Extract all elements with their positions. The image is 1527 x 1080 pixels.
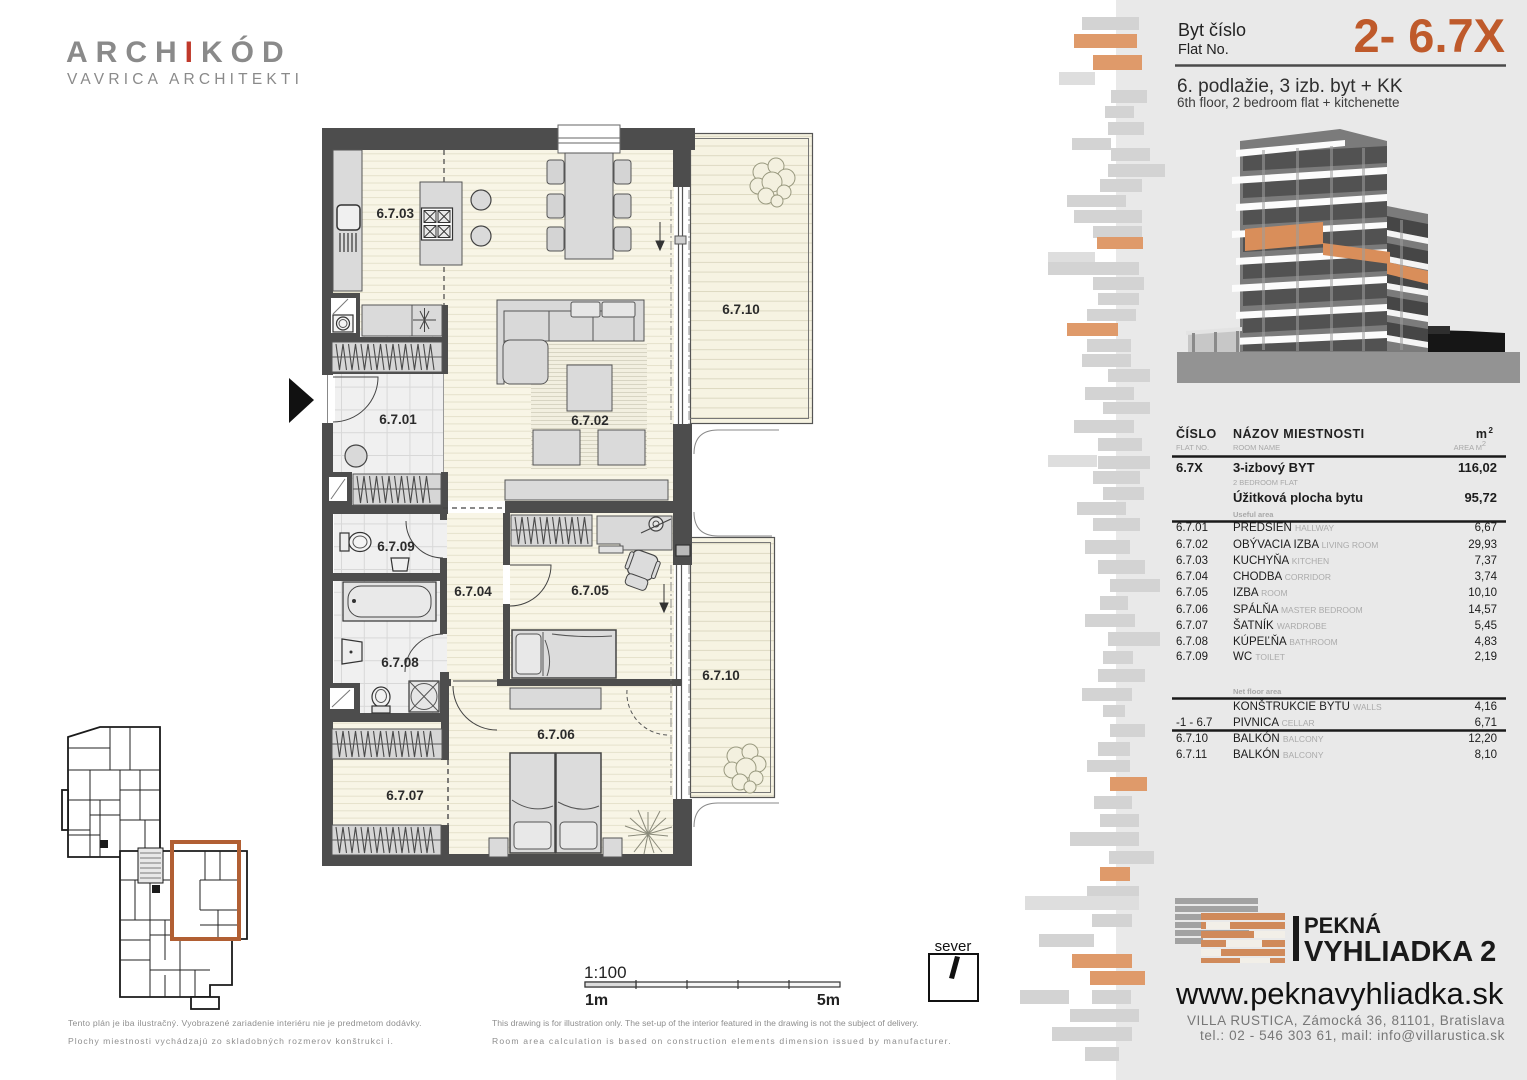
svg-text:BALKÓN BALCONY: BALKÓN BALCONY <box>1233 748 1324 761</box>
svg-text:ARCHIKÓD: ARCHIKÓD <box>66 35 292 69</box>
svg-text:KUCHYŇA KITCHEN: KUCHYŇA KITCHEN <box>1233 554 1329 567</box>
svg-text:OBÝVACIA IZBA LIVING ROOM: OBÝVACIA IZBA LIVING ROOM <box>1233 538 1378 551</box>
svg-text:4,16: 4,16 <box>1475 701 1497 713</box>
svg-text:10,10: 10,10 <box>1468 587 1497 599</box>
svg-text:Room area calculation is based: Room area calculation is based on constr… <box>492 1036 952 1046</box>
svg-text:Plochy miestnosti vychádzajú z: Plochy miestnosti vychádzajú zo skladobn… <box>68 1036 394 1046</box>
svg-text:12,20: 12,20 <box>1468 733 1497 745</box>
svg-text:5m: 5m <box>817 992 840 1009</box>
svg-text:14,57: 14,57 <box>1468 604 1497 616</box>
svg-text:Useful area: Useful area <box>1233 510 1274 519</box>
svg-text:6.7.07: 6.7.07 <box>1176 620 1208 632</box>
svg-text:6.7.07: 6.7.07 <box>386 788 424 803</box>
svg-text:AREA M: AREA M <box>1454 443 1482 452</box>
svg-text:This drawing is for illustrati: This drawing is for illustration only. T… <box>492 1018 919 1028</box>
svg-text:3-izbový BYT: 3-izbový BYT <box>1233 460 1315 475</box>
svg-text:6.7.04: 6.7.04 <box>1176 571 1209 583</box>
svg-text:7,37: 7,37 <box>1475 555 1497 567</box>
svg-text:ŠATNÍK WARDROBE: ŠATNÍK WARDROBE <box>1233 619 1327 632</box>
svg-text:2 BEDROOM FLAT: 2 BEDROOM FLAT <box>1233 478 1298 487</box>
svg-text:6.7.11: 6.7.11 <box>1176 749 1207 761</box>
svg-text:6.7.03: 6.7.03 <box>1176 555 1208 567</box>
svg-text:6.7.08: 6.7.08 <box>381 655 419 670</box>
svg-text:6.7.10: 6.7.10 <box>722 302 760 317</box>
svg-text:95,72: 95,72 <box>1464 490 1497 505</box>
svg-text:2,19: 2,19 <box>1475 651 1497 663</box>
svg-text:Flat No.: Flat No. <box>1178 42 1229 58</box>
svg-text:NÁZOV MIESTNOSTI: NÁZOV MIESTNOSTI <box>1233 426 1365 441</box>
svg-text:116,02: 116,02 <box>1458 460 1497 475</box>
svg-text:6.7.01: 6.7.01 <box>1176 522 1208 534</box>
svg-text:PEKNÁ: PEKNÁ <box>1304 913 1381 938</box>
svg-text:6.7.09: 6.7.09 <box>377 539 415 554</box>
svg-text:WC TOILET: WC TOILET <box>1233 651 1285 663</box>
svg-text:CHODBA CORRIDOR: CHODBA CORRIDOR <box>1233 571 1331 583</box>
svg-text:www.peknavyhliadka.sk: www.peknavyhliadka.sk <box>1175 976 1504 1011</box>
svg-text:6.7.10: 6.7.10 <box>702 668 740 683</box>
svg-text:6.7.02: 6.7.02 <box>1176 539 1208 551</box>
svg-text:8,10: 8,10 <box>1475 749 1497 761</box>
svg-text:6.7.08: 6.7.08 <box>1176 636 1208 648</box>
svg-text:FLAT NO.: FLAT NO. <box>1176 443 1209 452</box>
svg-text:VAVRICA ARCHITEKTI: VAVRICA ARCHITEKTI <box>67 71 303 88</box>
svg-text:Tento plán je iba ilustračný.: Tento plán je iba ilustračný. Vyobrazené… <box>68 1018 422 1028</box>
svg-text:6. podlažie, 3 izb. byt + KK: 6. podlažie, 3 izb. byt + KK <box>1177 76 1403 97</box>
svg-text:6.7.09: 6.7.09 <box>1176 651 1208 663</box>
svg-text:1:100: 1:100 <box>584 963 627 982</box>
svg-text:VYHLIADKA 2: VYHLIADKA 2 <box>1304 936 1496 968</box>
svg-text:6.7.06: 6.7.06 <box>1176 604 1208 616</box>
svg-text:2: 2 <box>1489 426 1494 435</box>
svg-text:Byt číslo: Byt číslo <box>1178 20 1246 40</box>
svg-text:tel.: 02 - 546 303 61, mail: i: tel.: 02 - 546 303 61, mail: info@villar… <box>1200 1028 1505 1043</box>
svg-text:6.7.05: 6.7.05 <box>1176 587 1208 599</box>
svg-text:6.7X: 6.7X <box>1176 460 1203 475</box>
svg-text:6,71: 6,71 <box>1475 717 1497 729</box>
svg-text:KÚPEĽŇA BATHROOM: KÚPEĽŇA BATHROOM <box>1233 635 1338 648</box>
svg-text:1m: 1m <box>585 992 608 1009</box>
svg-text:-1 - 6.7: -1 - 6.7 <box>1176 717 1212 729</box>
svg-text:Net floor area: Net floor area <box>1233 687 1282 696</box>
svg-text:VILLA RUSTICA, Zámocká 36, 811: VILLA RUSTICA, Zámocká 36, 81101, Bratis… <box>1187 1013 1505 1028</box>
svg-text:6.7.03: 6.7.03 <box>376 206 414 221</box>
svg-text:6.7.10: 6.7.10 <box>1176 733 1208 745</box>
svg-text:ČÍSLO: ČÍSLO <box>1176 426 1217 441</box>
svg-text:PREDSIEŇ HALLWAY: PREDSIEŇ HALLWAY <box>1233 521 1334 534</box>
svg-text:PIVNICA CELLAR: PIVNICA CELLAR <box>1233 717 1315 729</box>
svg-text:29,93: 29,93 <box>1468 539 1497 551</box>
svg-text:BALKÓN BALCONY: BALKÓN BALCONY <box>1233 732 1324 745</box>
svg-text:2- 6.7X: 2- 6.7X <box>1353 9 1505 62</box>
svg-text:KONŠTRUKCIE BYTU WALLS: KONŠTRUKCIE BYTU WALLS <box>1233 700 1382 713</box>
svg-text:6th floor, 2 bedroom flat + ki: 6th floor, 2 bedroom flat + kitchenette <box>1177 95 1400 110</box>
svg-text:4,83: 4,83 <box>1475 636 1497 648</box>
svg-text:6.7.06: 6.7.06 <box>537 727 575 742</box>
svg-text:sever: sever <box>935 938 972 955</box>
svg-text:ROOM NAME: ROOM NAME <box>1233 443 1280 452</box>
svg-text:5,45: 5,45 <box>1475 620 1497 632</box>
svg-text:IZBA ROOM: IZBA ROOM <box>1233 587 1288 599</box>
svg-text:6,67: 6,67 <box>1475 522 1497 534</box>
svg-text:2: 2 <box>1482 439 1486 448</box>
svg-text:6.7.04: 6.7.04 <box>454 584 492 599</box>
svg-text:6.7.01: 6.7.01 <box>379 412 417 427</box>
svg-text:SPÁLŇA MASTER BEDROOM: SPÁLŇA MASTER BEDROOM <box>1233 603 1363 616</box>
svg-text:6.7.02: 6.7.02 <box>571 413 609 428</box>
svg-text:Úžitková plocha bytu: Úžitková plocha bytu <box>1233 490 1363 505</box>
svg-text:3,74: 3,74 <box>1475 571 1498 583</box>
svg-text:6.7.05: 6.7.05 <box>571 583 609 598</box>
